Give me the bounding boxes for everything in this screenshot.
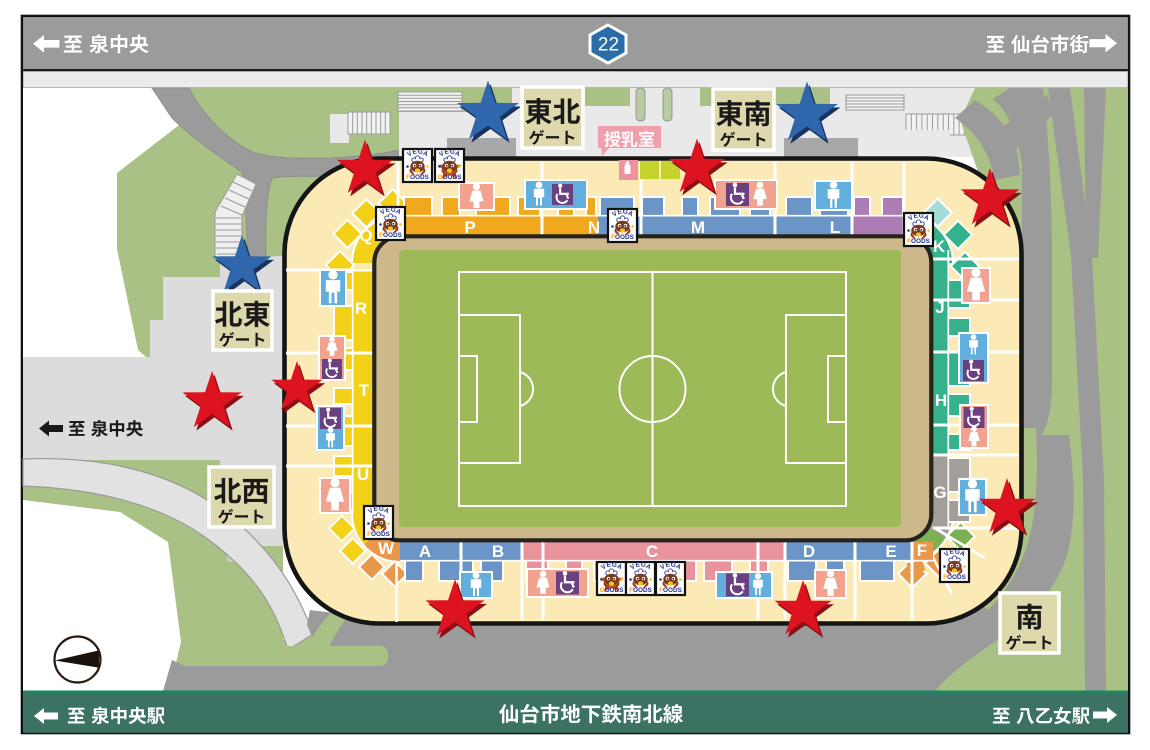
svg-text:Q: Q	[359, 226, 372, 245]
svg-text:T: T	[359, 381, 370, 400]
svg-text:H: H	[935, 391, 947, 410]
svg-text:G: G	[933, 483, 946, 502]
svg-text:FOODS: FOODS	[367, 531, 390, 538]
svg-text:N: N	[588, 218, 600, 237]
svg-text:D: D	[803, 542, 815, 561]
svg-text:W: W	[378, 539, 395, 558]
svg-text:L: L	[830, 218, 840, 237]
svg-text:FOODS: FOODS	[943, 574, 966, 581]
svg-text:B: B	[492, 542, 504, 561]
svg-text:FOODS: FOODS	[611, 234, 634, 241]
svg-text:K: K	[933, 237, 946, 256]
svg-text:FOODS: FOODS	[379, 232, 402, 239]
svg-text:FOODS: FOODS	[629, 587, 652, 594]
svg-text:U: U	[357, 465, 369, 484]
svg-text:GOODS: GOODS	[438, 174, 463, 181]
svg-text:R: R	[355, 299, 367, 318]
svg-text:C: C	[646, 542, 658, 561]
svg-text:FOODS: FOODS	[659, 587, 682, 594]
svg-text:22: 22	[598, 35, 619, 56]
svg-text:F: F	[917, 541, 927, 560]
svg-text:P: P	[464, 218, 475, 237]
svg-text:M: M	[691, 218, 705, 237]
svg-text:J: J	[935, 298, 944, 317]
svg-text:FOODS: FOODS	[406, 174, 429, 181]
svg-text:FOODS: FOODS	[907, 238, 930, 245]
svg-text:GOODS: GOODS	[600, 587, 625, 594]
svg-text:E: E	[885, 542, 896, 561]
svg-text:A: A	[419, 542, 431, 561]
